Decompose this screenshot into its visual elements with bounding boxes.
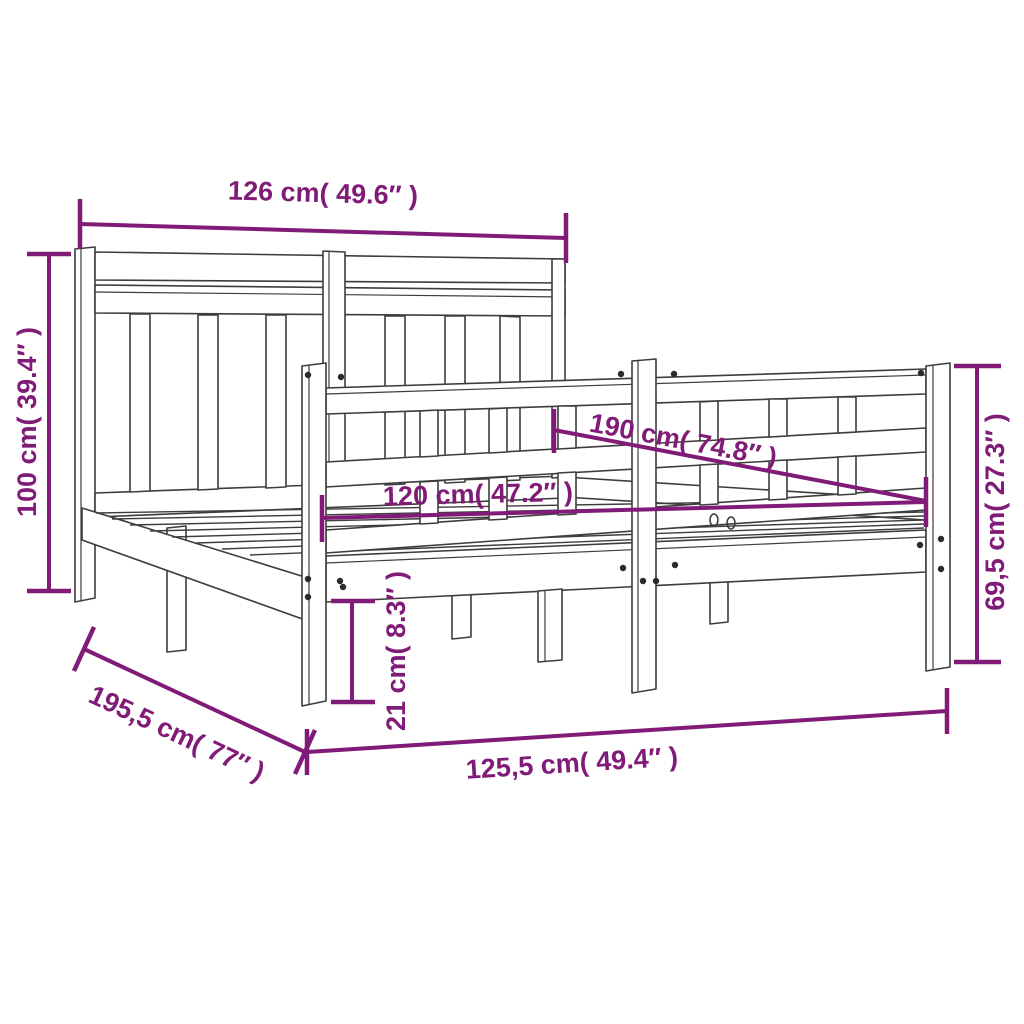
footboard-right-post — [926, 363, 950, 671]
footboard-slat — [420, 410, 438, 457]
dimension-label-total-width: 125,5 cm( 49.4″ ) — [465, 741, 679, 784]
dimension-label-footboard-height: 69,5 cm( 27.3″ ) — [980, 413, 1010, 611]
dimension-headboard-width: 126 cm( 49.6″ ) — [80, 175, 566, 263]
dimension-label-bed-width-inner: 120 cm( 47.2″ ) — [383, 477, 574, 512]
bed-frame-dimension-diagram: 126 cm( 49.6″ ) 100 cm( 39.4″ ) 190 cm( … — [0, 0, 1024, 1024]
dimension-headboard-height: 100 cm( 39.4″ ) — [12, 254, 71, 591]
bed-frame-drawing — [75, 247, 950, 706]
footboard-middle-post — [632, 359, 656, 693]
headboard-slat — [198, 315, 218, 490]
dimension-label-headboard-width: 126 cm( 49.6″ ) — [228, 175, 419, 210]
back-leg — [710, 580, 728, 624]
dimension-label-headboard-height: 100 cm( 39.4″ ) — [12, 327, 42, 517]
footboard-slat — [700, 464, 718, 505]
dimension-total-length: 195,5 cm( 77″ ) — [74, 627, 315, 787]
dimension-footboard-height: 69,5 cm( 27.3″ ) — [954, 366, 1010, 662]
front-leg — [538, 589, 562, 662]
dimension-label-frame-base-height: 21 cm( 8.3″ ) — [381, 571, 411, 731]
diagram-canvas: 126 cm( 49.6″ ) 100 cm( 39.4″ ) 190 cm( … — [0, 0, 1024, 1024]
footboard-slat — [558, 406, 576, 449]
footboard-slat — [489, 408, 507, 453]
back-leg — [452, 592, 471, 639]
headboard-left-post — [75, 247, 95, 602]
footboard-slat — [838, 397, 856, 433]
headboard-slat — [130, 314, 150, 492]
footboard-slat — [769, 399, 787, 437]
near-side-rail — [82, 508, 308, 621]
headboard-slat — [266, 315, 286, 488]
dimension-label-total-length: 195,5 cm( 77″ ) — [84, 680, 269, 788]
